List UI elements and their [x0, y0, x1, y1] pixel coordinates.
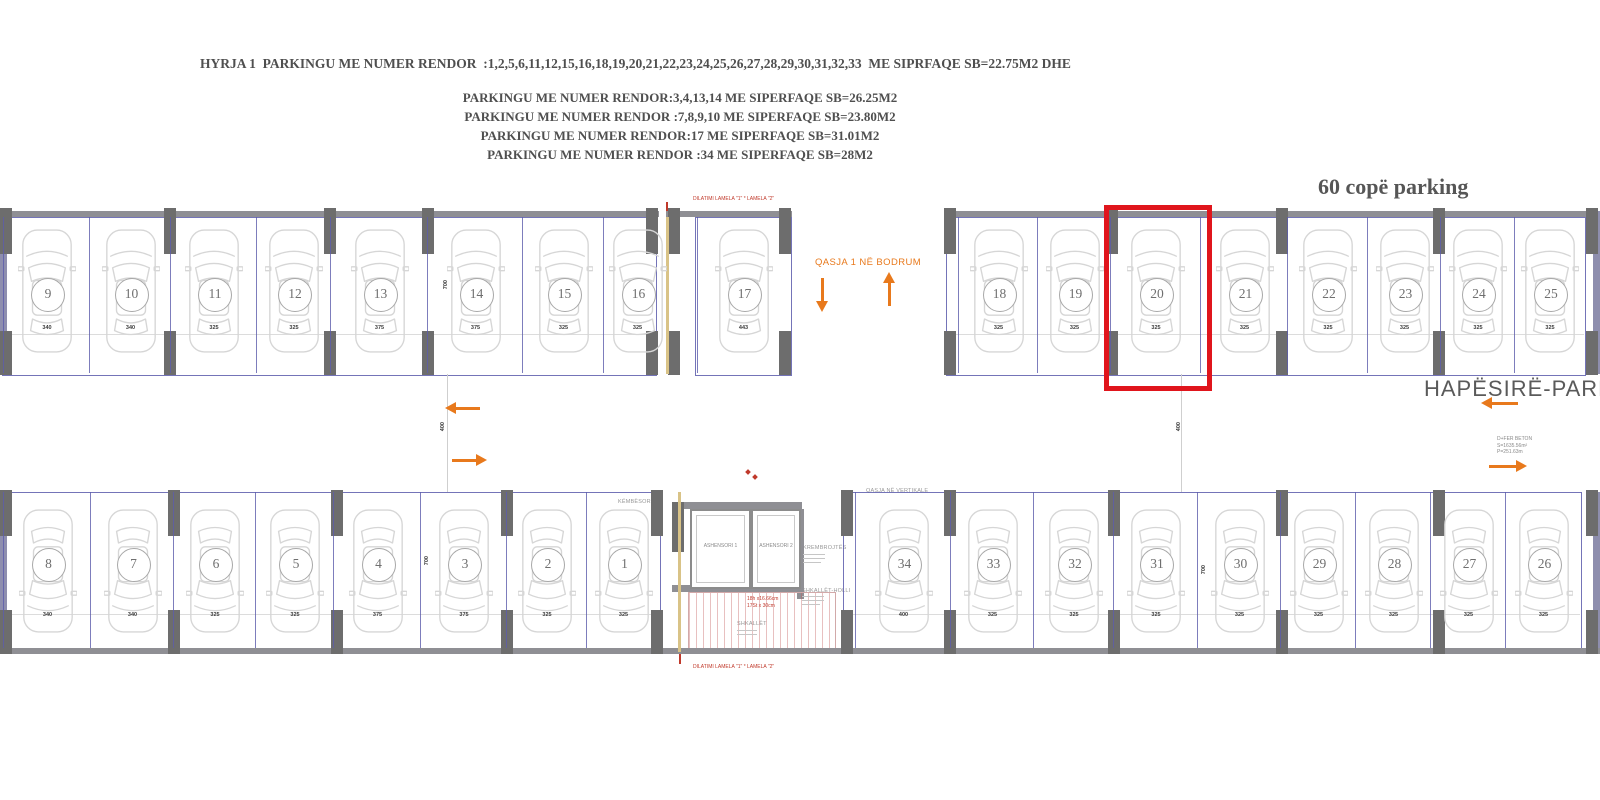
spot-number: 23: [1389, 278, 1423, 312]
parking-spot-7: 7340: [90, 492, 174, 648]
elevator-2: ASHENSORI 2: [751, 509, 801, 589]
spot-number: 13: [364, 278, 398, 312]
krembrojtes-label: KREMBROJTËS: [803, 545, 846, 551]
spot-number: 3: [448, 548, 482, 582]
spot-width-label: 325: [1441, 325, 1515, 331]
dilatimi-label-top: DILATIMI LAMELA "1" * LAMELA "2": [693, 196, 774, 204]
parking-spot-15: 15325: [522, 217, 604, 373]
spot-width-label: 340: [4, 612, 91, 618]
spot-width-label: 325: [1201, 325, 1288, 331]
spot-number: 5: [279, 548, 313, 582]
spot-width-label: 325: [587, 612, 660, 618]
parking-spot-2: 2325: [506, 492, 587, 648]
aisle-line: [447, 374, 448, 492]
parking-spot-31: 31325: [1113, 492, 1198, 648]
spot-number: 29: [1303, 548, 1337, 582]
left-arrow-icon-right-side: [1491, 402, 1518, 405]
header-block: PARKINGU ME NUMER RENDOR:3,4,13,14 ME SI…: [330, 88, 1030, 164]
spot-width-label: 325: [507, 612, 587, 618]
header-line-5: PARKINGU ME NUMER RENDOR :34 ME SIPERFAQ…: [330, 145, 1030, 164]
spot-width-label: 325: [1038, 325, 1111, 331]
tiny-note-line: [803, 558, 825, 559]
spot-number: 27: [1453, 548, 1487, 582]
qasja-bodrum-label: QASJA 1 NË BODRUM: [815, 257, 921, 268]
spot-number: 4: [362, 548, 396, 582]
spot-width-label: 375: [331, 325, 428, 331]
core-wall: [672, 502, 802, 509]
spot-width-label: 340: [4, 325, 90, 331]
spot-width-label: 340: [90, 325, 171, 331]
parking-spot-32: 32325: [1033, 492, 1114, 648]
parking-spot-10: 10340: [89, 217, 171, 373]
spot-number: 17: [728, 278, 762, 312]
parking-spot-25: 25325: [1514, 217, 1585, 373]
spot-number: 21: [1229, 278, 1263, 312]
tiny-note-line: [803, 562, 821, 563]
parking-spot-3: 3375: [420, 492, 507, 648]
fer-beton-note: D+FER BETON S=1635.56m² P=251.63m: [1497, 436, 1532, 456]
column: [1586, 331, 1598, 375]
hapesire-parking-label: HAPËSIRË-PARKING: [1424, 376, 1600, 402]
spot-number: 10: [115, 278, 149, 312]
exterior-wall: [0, 648, 1600, 654]
spot-width-label: 375: [421, 612, 507, 618]
parking-spot-9: 9340: [3, 217, 90, 373]
parking-spot-21: 21325: [1200, 217, 1288, 373]
parking-spot-8: 8340: [3, 492, 91, 648]
floor-plan-sheet: HYRJA 1 PARKINGU ME NUMER RENDOR :1,2,5,…: [0, 0, 1600, 800]
dilatimi-label-bottom: DILATIMI LAMELA "1" * LAMELA "2": [693, 664, 774, 672]
parking-spot-19: 19325: [1037, 217, 1111, 373]
parking-spot-22: 22325: [1287, 217, 1368, 373]
parking-spot-12: 12325: [256, 217, 331, 373]
spot-width-label: 325: [1368, 325, 1441, 331]
dilatimi-tick-bottom: [679, 654, 681, 664]
parking-spot-30: 30325: [1197, 492, 1281, 648]
dilatation-strip: [678, 492, 681, 652]
elevator-cab: [696, 515, 745, 583]
spot-width-label: 325: [1506, 612, 1581, 618]
parking-spot-34: 34400: [855, 492, 951, 648]
spot-width-label: 325: [951, 612, 1034, 618]
spot-number: 30: [1224, 548, 1258, 582]
tiny-note-line: [737, 634, 757, 635]
dim-400-left: 400: [440, 422, 446, 431]
spot-number: 25: [1534, 278, 1568, 312]
right-arrow-icon-right-side: [1489, 465, 1517, 468]
spot-number: 12: [278, 278, 312, 312]
spot-number: 28: [1378, 548, 1412, 582]
spot-number: 19: [1059, 278, 1093, 312]
spot-width-label: 325: [1431, 612, 1506, 618]
spot-number: 1: [608, 548, 642, 582]
spot-number: 18: [983, 278, 1017, 312]
left-arrow-icon: [455, 407, 480, 410]
parking-spot-11: 11325: [170, 217, 257, 373]
parking-spot-18: 18325: [958, 217, 1038, 373]
tiny-note-line: [737, 630, 757, 631]
down-arrow-icon: [821, 278, 824, 302]
parking-spot-5: 5325: [255, 492, 334, 648]
column: [944, 208, 956, 254]
tiny-note-line: [803, 554, 825, 555]
header-line-4: PARKINGU ME NUMER RENDOR:17 ME SIPERFAQE…: [330, 126, 1030, 145]
parking-spot-16: 16325: [603, 217, 671, 373]
column: [1586, 208, 1598, 254]
column: [841, 490, 853, 536]
spot-number: 9: [31, 278, 65, 312]
spot-width-label: 375: [428, 325, 523, 331]
spot-number: 7: [117, 548, 151, 582]
right-arrow-icon: [452, 459, 477, 462]
column: [944, 331, 956, 375]
spot-width-label: 443: [698, 325, 789, 331]
spot-number: 2: [531, 548, 565, 582]
spot-width-label: 325: [1034, 612, 1114, 618]
spot-number: 14: [460, 278, 494, 312]
parking-spot-4: 4375: [333, 492, 421, 648]
header-line-3: PARKINGU ME NUMER RENDOR :7,8,9,10 ME SI…: [330, 107, 1030, 126]
spot-width-label: 375: [334, 612, 421, 618]
parking-spot-13: 13375: [330, 217, 428, 373]
spot-width-label: 325: [1288, 325, 1368, 331]
parking-spot-17: 17443: [697, 217, 789, 373]
spot-number: 11: [198, 278, 232, 312]
tiny-note-line: [802, 596, 824, 597]
spot-number: 24: [1462, 278, 1496, 312]
parking-spot-14: 14375: [427, 217, 523, 373]
spot-width-label: 325: [959, 325, 1038, 331]
column: [1586, 490, 1598, 536]
spot-width-label: 325: [174, 612, 256, 618]
parking-spot-33: 33325: [950, 492, 1034, 648]
spot-width-label: 400: [856, 612, 951, 618]
elevator-1: ASHENSORI 1: [690, 509, 751, 589]
spot-width-label: 325: [1281, 612, 1356, 618]
column: [1586, 610, 1598, 654]
spot-width-label: 325: [256, 612, 334, 618]
spot-number: 6: [199, 548, 233, 582]
spot-number: 16: [622, 278, 656, 312]
elevator-1-label: ASHENSORI 1: [692, 543, 749, 549]
spot-number: 32: [1058, 548, 1092, 582]
header-line-1: HYRJA 1 PARKINGU ME NUMER RENDOR :1,2,5,…: [200, 56, 1071, 72]
spot-number: 31: [1140, 548, 1174, 582]
up-arrow-icon: [888, 282, 891, 306]
red-marker-icon: [752, 474, 758, 480]
parking-spot-29: 29325: [1280, 492, 1356, 648]
parking-spot-26: 26325: [1505, 492, 1581, 648]
column: [841, 610, 853, 654]
spot-width-label: 325: [1515, 325, 1585, 331]
spot-width-label: 325: [171, 325, 257, 331]
spot-number: 34: [888, 548, 922, 582]
dilatimi-tick-top: [666, 202, 668, 211]
highlight-box-spot-20: [1104, 205, 1212, 391]
tiny-note-line: [802, 604, 820, 605]
red-marker-icon: [745, 469, 751, 475]
spot-number: 26: [1528, 548, 1562, 582]
spot-width-label: 340: [91, 612, 174, 618]
parking-spot-6: 6325: [173, 492, 256, 648]
elevator-cab: [757, 515, 795, 583]
spot-width-label: 325: [604, 325, 671, 331]
spot-number: 33: [977, 548, 1011, 582]
tiny-note-line: [802, 600, 824, 601]
aisle-line: [1181, 374, 1182, 492]
spot-width-label: 325: [1198, 612, 1281, 618]
spot-number: 8: [32, 548, 66, 582]
parking-spot-23: 23325: [1367, 217, 1441, 373]
parking-spot-24: 24325: [1440, 217, 1515, 373]
elevator-2-label: ASHENSORI 2: [753, 543, 799, 549]
spot-width-label: 325: [1356, 612, 1431, 618]
spot-number: 22: [1312, 278, 1346, 312]
parking-spot-1: 1325: [586, 492, 660, 648]
parking-spot-27: 27325: [1430, 492, 1506, 648]
header-line-2: PARKINGU ME NUMER RENDOR:3,4,13,14 ME SI…: [330, 88, 1030, 107]
spot-width-label: 325: [257, 325, 331, 331]
parking-count-label: 60 copë parking: [1318, 174, 1468, 200]
parking-spot-28: 28325: [1355, 492, 1431, 648]
spot-width-label: 325: [523, 325, 604, 331]
spot-width-label: 325: [1114, 612, 1198, 618]
spot-number: 15: [548, 278, 582, 312]
